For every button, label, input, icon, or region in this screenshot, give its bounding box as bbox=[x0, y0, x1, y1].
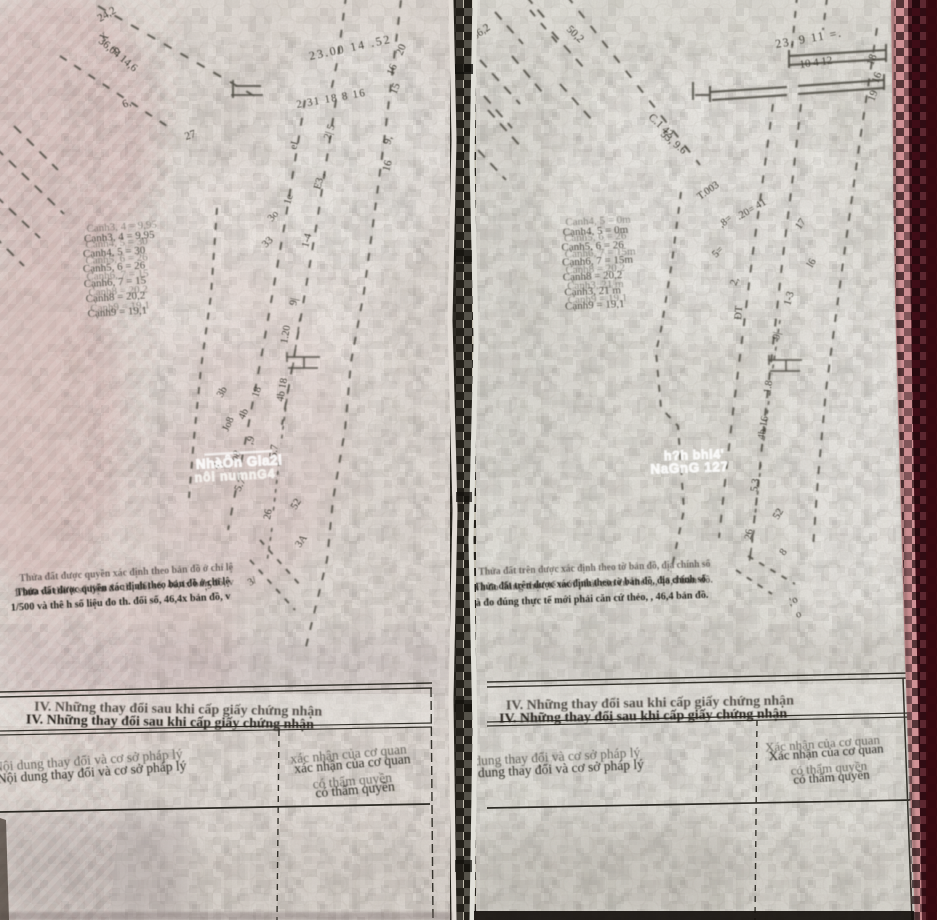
svg-text:1.8: 1.8 bbox=[762, 380, 775, 395]
svg-text:NaGnG 127: NaGnG 127 bbox=[650, 459, 729, 477]
svg-text:ĐT: ĐT bbox=[733, 305, 745, 320]
svg-text:Cạnh3, 21 m: Cạnh3, 21 m bbox=[564, 284, 621, 298]
svg-text:26: 26 bbox=[262, 508, 275, 520]
svg-text:26: 26 bbox=[743, 528, 756, 540]
svg-text:5.3: 5.3 bbox=[749, 478, 762, 493]
